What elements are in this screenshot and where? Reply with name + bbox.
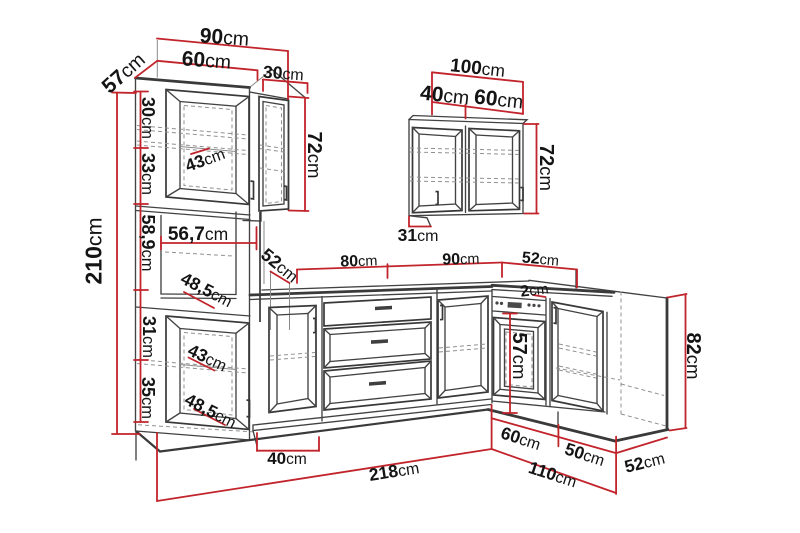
svg-text:90cm: 90cm (442, 250, 480, 268)
svg-text:82cm: 82cm (682, 333, 704, 380)
svg-text:31cm: 31cm (398, 225, 439, 245)
svg-text:80cm: 80cm (340, 252, 378, 270)
svg-text:40cm: 40cm (267, 449, 307, 468)
svg-text:30cm: 30cm (138, 97, 158, 139)
svg-text:90cm: 90cm (199, 24, 250, 50)
svg-text:72cm: 72cm (303, 132, 325, 179)
svg-text:57cm: 57cm (508, 333, 530, 380)
svg-text:60cm: 60cm (181, 47, 232, 73)
svg-text:58,9cm: 58,9cm (138, 214, 158, 271)
svg-text:210cm: 210cm (81, 217, 107, 284)
svg-text:35cm: 35cm (138, 377, 158, 419)
svg-text:52cm: 52cm (521, 249, 559, 269)
svg-text:2cm: 2cm (519, 280, 549, 300)
svg-text:31cm: 31cm (139, 316, 159, 358)
svg-text:33cm: 33cm (138, 153, 158, 195)
svg-text:72cm: 72cm (535, 144, 557, 191)
svg-text:56,7cm: 56,7cm (168, 224, 228, 245)
